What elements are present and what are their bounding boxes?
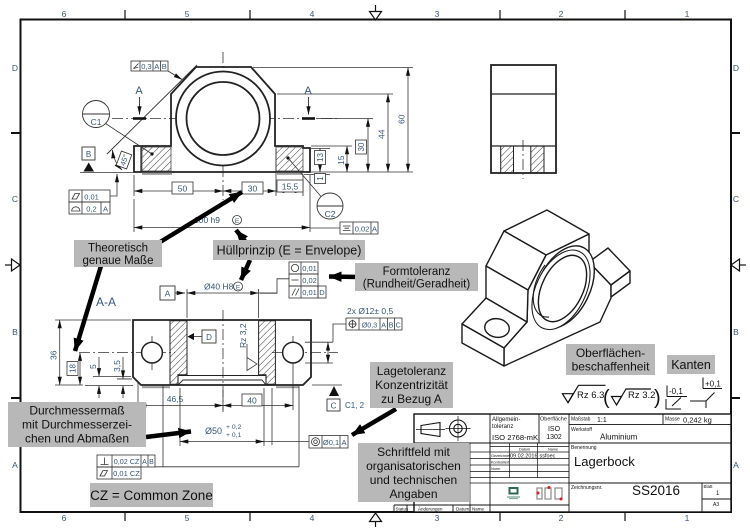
svg-text:15: 15: [336, 155, 346, 165]
svg-text:Theoretisch: Theoretisch: [88, 243, 148, 255]
svg-text:0,02 CZ: 0,02 CZ: [114, 457, 140, 466]
svg-text:5: 5: [88, 364, 98, 369]
svg-text:Name: Name: [548, 448, 558, 452]
svg-text:Ø0,3: Ø0,3: [362, 321, 378, 330]
svg-text:D: D: [733, 63, 739, 73]
svg-text:Datum: Datum: [519, 448, 530, 452]
svg-text:SS2016: SS2016: [632, 483, 680, 498]
svg-text:A: A: [135, 85, 143, 97]
svg-text:CZ = Common Zone: CZ = Common Zone: [90, 488, 213, 503]
svg-text:A: A: [381, 321, 386, 330]
svg-text:44: 44: [377, 129, 387, 139]
svg-text:+ 0,1: + 0,1: [226, 432, 242, 439]
svg-text:organisatorischen: organisatorischen: [366, 459, 461, 473]
svg-text:genaue Maße: genaue Maße: [83, 255, 154, 267]
svg-text:A: A: [12, 460, 18, 470]
svg-text:Hüllprinzip (E = Envelope): Hüllprinzip (E = Envelope): [217, 244, 362, 258]
svg-text:6: 6: [62, 9, 67, 19]
svg-text:1:1: 1:1: [597, 417, 607, 424]
svg-text:18: 18: [69, 364, 78, 373]
svg-text:1: 1: [685, 9, 690, 19]
svg-text:Konzentrizität: Konzentrizität: [375, 378, 448, 392]
svg-text:B: B: [389, 321, 394, 330]
svg-text:Oberfläche: Oberfläche: [540, 417, 567, 423]
svg-text:C1: C1: [91, 117, 102, 127]
svg-text:Angaben: Angaben: [389, 487, 437, 501]
svg-text:ISO 2768-mK: ISO 2768-mK: [492, 433, 538, 442]
svg-text:B: B: [149, 459, 154, 466]
svg-text:+ 0,2: + 0,2: [226, 424, 242, 431]
svg-text:B: B: [12, 327, 18, 337]
svg-text:0,01: 0,01: [302, 288, 317, 297]
svg-text:0,01: 0,01: [302, 264, 317, 273]
svg-text:(: (: [603, 387, 610, 409]
svg-text:0,2: 0,2: [86, 205, 96, 214]
svg-text:Gezeichnet: Gezeichnet: [491, 454, 511, 458]
svg-text:5: 5: [185, 9, 190, 19]
svg-text:40: 40: [247, 396, 257, 406]
svg-text:A: A: [142, 459, 147, 466]
svg-text:(Rundheit/Geradheit): (Rundheit/Geradheit): [363, 279, 471, 291]
svg-text:C: C: [396, 321, 401, 330]
svg-text:Blatt: Blatt: [704, 484, 714, 489]
svg-text:Rz 3.2: Rz 3.2: [628, 390, 655, 401]
svg-text:3: 3: [435, 9, 440, 19]
svg-text:A: A: [733, 460, 739, 470]
svg-text:13: 13: [316, 153, 325, 162]
svg-text:Lagetoleranz: Lagetoleranz: [377, 364, 446, 378]
svg-text:3,5: 3,5: [112, 360, 122, 372]
svg-text:Rz 3,2: Rz 3,2: [238, 323, 248, 348]
svg-text:15,5: 15,5: [282, 182, 299, 192]
svg-text:Ø0,1: Ø0,1: [323, 438, 339, 447]
svg-text:30: 30: [248, 184, 258, 194]
svg-text:Kanten: Kanten: [671, 358, 711, 372]
svg-text:A: A: [304, 85, 312, 97]
svg-text:50: 50: [178, 184, 188, 194]
svg-text:1: 1: [685, 513, 690, 523]
svg-text:Benennung: Benennung: [571, 445, 597, 451]
svg-text:4: 4: [310, 513, 315, 523]
svg-text:C: C: [331, 402, 337, 411]
svg-text:0,01: 0,01: [84, 193, 99, 202]
svg-text:0,3: 0,3: [141, 62, 151, 71]
svg-text:Schriftfeld mit: Schriftfeld mit: [377, 445, 450, 459]
svg-text:Name: Name: [472, 507, 485, 512]
svg-text:A: A: [103, 205, 108, 214]
svg-text:Lagerbock: Lagerbock: [574, 454, 635, 469]
svg-text:und technischen: und technischen: [370, 473, 457, 487]
svg-text:1302: 1302: [546, 434, 562, 441]
svg-text:Masse: Masse: [665, 417, 680, 423]
svg-text:4: 4: [310, 9, 315, 19]
svg-text:A3: A3: [713, 502, 719, 508]
svg-text:Maßstab: Maßstab: [571, 417, 591, 423]
svg-text:toleranz: toleranz: [492, 424, 513, 430]
svg-text:0,01 CZ: 0,01 CZ: [113, 469, 140, 478]
svg-text:D: D: [206, 333, 212, 342]
svg-text:36: 36: [49, 350, 59, 360]
svg-text:5: 5: [185, 513, 190, 523]
svg-text:Ø40 H8: Ø40 H8: [204, 282, 234, 292]
svg-text:C1, 2: C1, 2: [345, 401, 365, 410]
svg-text:Werkstoff: Werkstoff: [571, 427, 593, 433]
svg-text:A: A: [372, 225, 377, 234]
svg-text:-0,1: -0,1: [669, 387, 683, 396]
svg-text:A: A: [165, 289, 171, 299]
svg-text:B: B: [162, 62, 167, 71]
svg-text:+0,1: +0,1: [705, 380, 721, 389]
svg-text:2: 2: [559, 9, 564, 19]
svg-text:1: 1: [316, 176, 325, 181]
svg-text:0,02: 0,02: [355, 225, 370, 234]
svg-text:A: A: [341, 438, 346, 447]
svg-text:B: B: [733, 327, 739, 337]
svg-text:A-A: A-A: [96, 295, 116, 309]
svg-text:0,02: 0,02: [302, 276, 317, 285]
svg-text:mit Durchmesserzei-: mit Durchmesserzei-: [22, 418, 132, 432]
svg-text:60: 60: [397, 114, 407, 124]
svg-text:Kontrolliert: Kontrolliert: [491, 461, 510, 465]
svg-text:Formtoleranz: Formtoleranz: [383, 266, 451, 278]
svg-text:Datum: Datum: [456, 507, 470, 512]
svg-text:Allgemein-: Allgemein-: [492, 417, 520, 423]
svg-text:beschaffenheit: beschaffenheit: [572, 360, 651, 374]
svg-text:B: B: [86, 150, 91, 159]
svg-text:6: 6: [62, 513, 67, 523]
svg-text:3: 3: [435, 513, 440, 523]
svg-text:Rz 6.3: Rz 6.3: [577, 390, 604, 401]
svg-text:C: C: [733, 194, 739, 204]
svg-text:Norm: Norm: [491, 467, 500, 471]
svg-text:Aluminium: Aluminium: [600, 433, 638, 442]
svg-text:E: E: [236, 285, 241, 292]
svg-text:Durchmessermaß: Durchmessermaß: [29, 404, 124, 418]
svg-text:2x Ø12± 0,5: 2x Ø12± 0,5: [347, 306, 394, 316]
svg-text:E: E: [235, 218, 240, 225]
svg-text:Status: Status: [396, 507, 410, 512]
svg-text:A: A: [154, 62, 159, 71]
svg-text:2: 2: [559, 513, 564, 523]
svg-text:30: 30: [357, 142, 366, 151]
svg-text:0,242 kg: 0,242 kg: [683, 416, 712, 425]
svg-text:D: D: [319, 288, 325, 297]
svg-text:ISO: ISO: [548, 426, 561, 433]
svg-text:Oberflächen-: Oberflächen-: [576, 346, 645, 360]
svg-text:09.02.2016: 09.02.2016: [510, 454, 538, 460]
svg-text:): ): [654, 387, 661, 409]
svg-text:ssfoec: ssfoec: [540, 454, 556, 460]
svg-text:Zeichnungsnr.: Zeichnungsnr.: [571, 485, 602, 491]
svg-text:zu Bezug A: zu Bezug A: [381, 392, 442, 406]
svg-text:C: C: [12, 194, 18, 204]
svg-text:chen und Abmaßen: chen und Abmaßen: [25, 432, 129, 446]
svg-text:Änderungen: Änderungen: [418, 506, 443, 512]
svg-text:Ø50: Ø50: [205, 426, 222, 436]
svg-text:D: D: [12, 63, 18, 73]
svg-text:C2: C2: [325, 209, 336, 219]
svg-text:46,5: 46,5: [167, 394, 184, 404]
